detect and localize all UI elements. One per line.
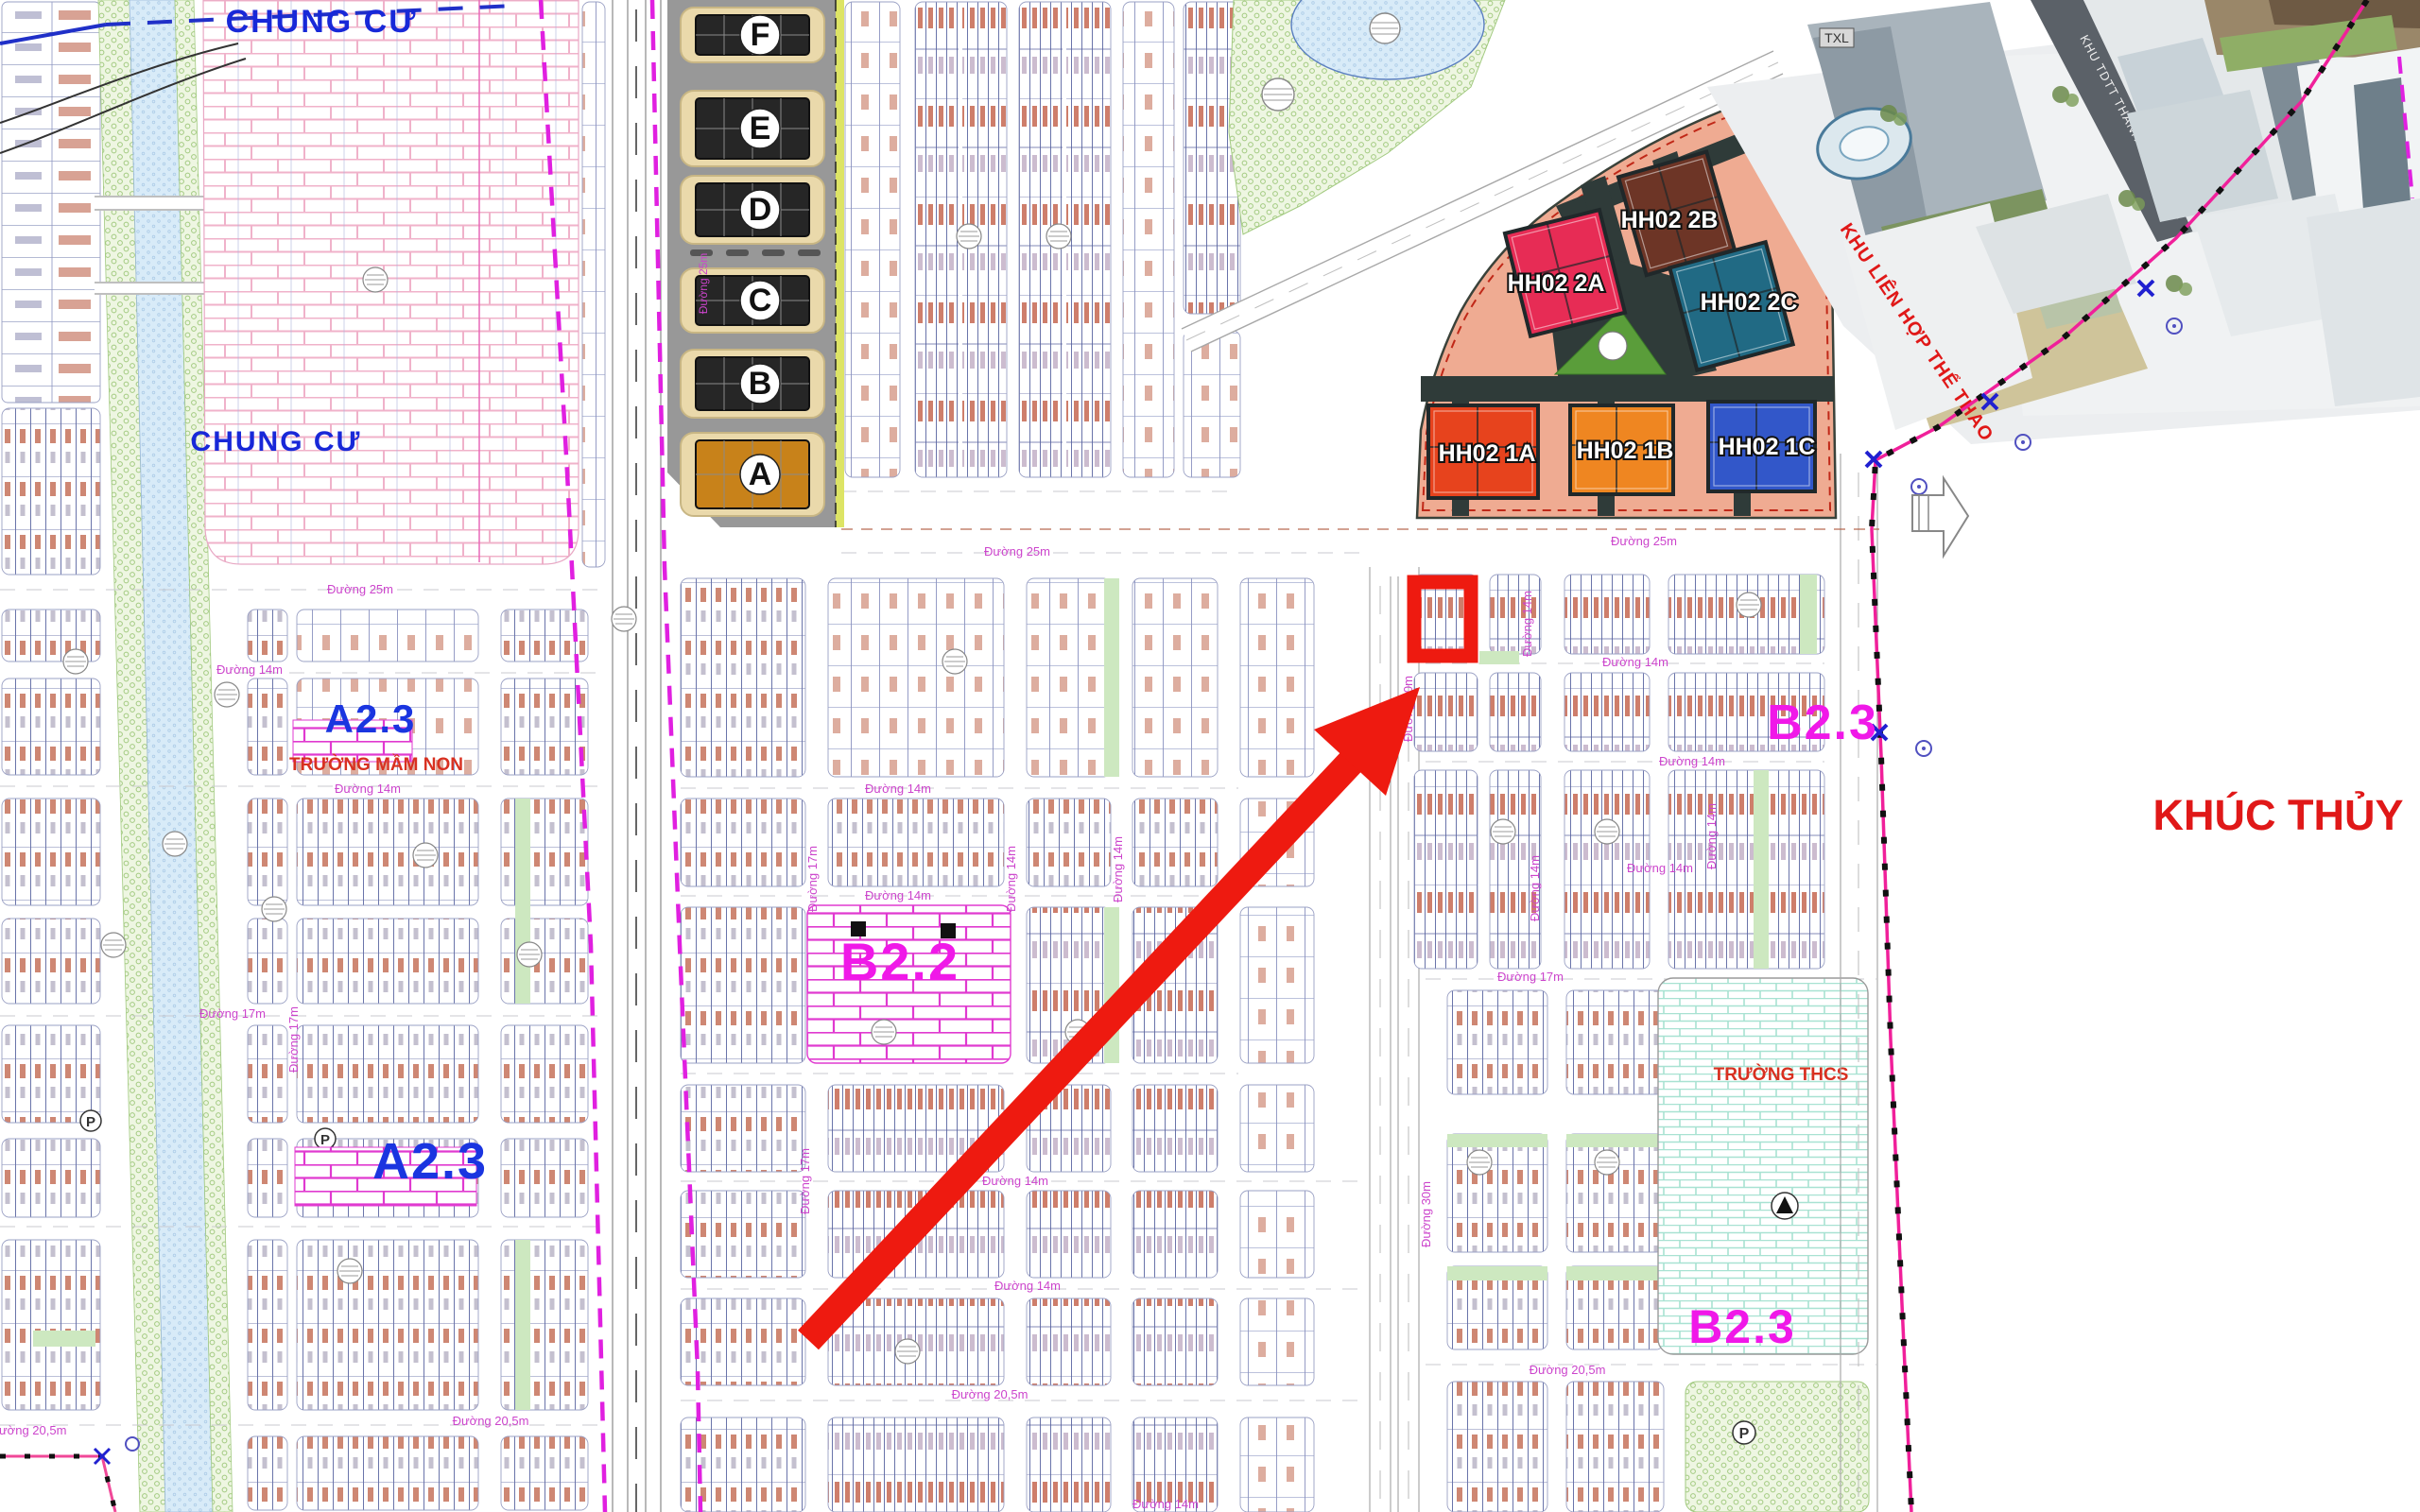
svg-text:Đường 25m: Đường 25m	[697, 253, 710, 315]
svg-text:Đường 20,5m: Đường 20,5m	[0, 1423, 66, 1437]
svg-text:HH02 2C: HH02 2C	[1701, 289, 1798, 316]
svg-text:Đường 17m: Đường 17m	[199, 1006, 266, 1021]
svg-text:KHÚC THỦY: KHÚC THỦY	[2153, 791, 2404, 839]
svg-text:Đường 20,5m: Đường 20,5m	[453, 1414, 529, 1428]
svg-text:Đường 14m: Đường 14m	[865, 888, 931, 902]
svg-text:CHUNG CƯ: CHUNG CƯ	[226, 4, 418, 40]
svg-text:Đường 25m: Đường 25m	[327, 582, 393, 596]
svg-text:Đường 14m: Đường 14m	[865, 782, 931, 796]
svg-text:D: D	[749, 192, 772, 228]
svg-text:Đường 14m: Đường 14m	[1111, 836, 1125, 902]
svg-text:P: P	[1739, 1426, 1750, 1442]
svg-text:HH02 1A: HH02 1A	[1439, 440, 1536, 467]
svg-text:Đường 14m: Đường 14m	[1602, 655, 1668, 669]
svg-text:Đường 14m: Đường 14m	[982, 1174, 1048, 1188]
svg-text:HH02 2B: HH02 2B	[1621, 207, 1719, 233]
svg-text:Đường 25m: Đường 25m	[1611, 534, 1677, 548]
svg-text:B2.3: B2.3	[1688, 1300, 1796, 1353]
svg-text:Đường 17m: Đường 17m	[1497, 970, 1564, 984]
svg-text:A: A	[749, 456, 772, 492]
svg-text:TRƯỜNG THCS: TRƯỜNG THCS	[1714, 1064, 1849, 1085]
svg-text:Đường 25m: Đường 25m	[984, 544, 1050, 558]
svg-text:TRƯỜNG MẦM NON: TRƯỜNG MẦM NON	[289, 754, 463, 775]
svg-text:A2.3: A2.3	[325, 696, 417, 741]
svg-text:E: E	[750, 111, 771, 146]
svg-text:HH02 1C: HH02 1C	[1719, 434, 1816, 460]
svg-text:C: C	[749, 283, 772, 318]
svg-text:Đường 17m: Đường 17m	[805, 846, 820, 912]
svg-text:B2.2: B2.2	[840, 932, 959, 991]
svg-text:HH02 1B: HH02 1B	[1577, 438, 1674, 464]
svg-text:F: F	[751, 17, 770, 53]
svg-text:Đường 14m: Đường 14m	[1704, 803, 1719, 869]
svg-text:Đường 14m: Đường 14m	[1132, 1497, 1199, 1511]
svg-text:A2.3: A2.3	[372, 1133, 488, 1190]
svg-text:Đường 17m: Đường 17m	[798, 1148, 812, 1214]
svg-text:Đường 14m: Đường 14m	[1659, 754, 1725, 768]
svg-text:B2.3: B2.3	[1767, 696, 1878, 750]
svg-text:Đường 20,5m: Đường 20,5m	[1530, 1363, 1606, 1377]
svg-text:P: P	[86, 1114, 95, 1130]
svg-text:B: B	[749, 366, 772, 402]
svg-text:Đường 14m: Đường 14m	[1520, 591, 1534, 657]
svg-text:CHUNG CƯ: CHUNG CƯ	[191, 426, 362, 457]
svg-text:Đường 14m: Đường 14m	[1627, 861, 1693, 875]
svg-text:Đường 14m: Đường 14m	[994, 1279, 1061, 1293]
svg-text:Đường 14m: Đường 14m	[1528, 855, 1542, 921]
svg-text:Đường 14m: Đường 14m	[216, 662, 283, 677]
svg-text:Đường 14m: Đường 14m	[335, 782, 401, 796]
svg-text:HH02 2A: HH02 2A	[1508, 270, 1605, 297]
svg-text:Đường 17m: Đường 17m	[286, 1006, 301, 1073]
svg-text:Đường 14m: Đường 14m	[1004, 846, 1018, 912]
svg-text:TXL: TXL	[1824, 30, 1849, 45]
svg-text:Đường 30m: Đường 30m	[1419, 1181, 1433, 1247]
svg-text:P: P	[320, 1132, 330, 1148]
svg-text:Đường 20,5m: Đường 20,5m	[952, 1387, 1028, 1401]
